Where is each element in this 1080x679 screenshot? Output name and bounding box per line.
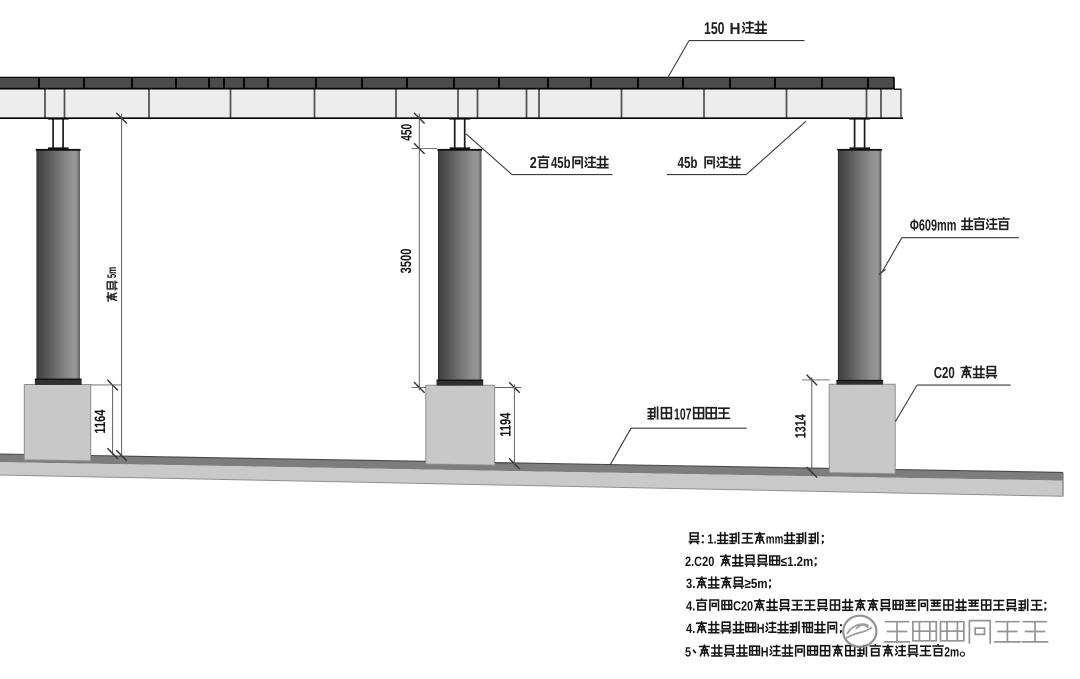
svg-text:3.: 3. <box>686 576 695 591</box>
svg-text:107: 107 <box>674 407 692 424</box>
svg-text:450: 450 <box>398 124 415 141</box>
svg-text:2.C20: 2.C20 <box>685 554 714 569</box>
svg-text:C20: C20 <box>733 599 753 614</box>
svg-text:45b: 45b <box>551 155 571 172</box>
svg-text:3500: 3500 <box>398 249 415 274</box>
svg-text:150: 150 <box>704 19 725 38</box>
svg-text:mm: mm <box>766 532 784 547</box>
svg-text:C20: C20 <box>934 365 955 382</box>
svg-text:Φ609mm: Φ609mm <box>910 218 957 235</box>
svg-text:H: H <box>757 621 765 636</box>
svg-text:2: 2 <box>530 155 537 172</box>
svg-text:5: 5 <box>685 644 691 659</box>
svg-text:4.: 4. <box>686 599 695 614</box>
svg-text:H: H <box>730 21 741 38</box>
svg-text:5m: 5m <box>105 267 119 279</box>
svg-text:2m: 2m <box>944 644 959 659</box>
svg-text:1194: 1194 <box>497 412 514 436</box>
svg-text:45b: 45b <box>678 155 698 172</box>
svg-text:H: H <box>761 644 769 659</box>
svg-text:1.: 1. <box>707 532 716 547</box>
svg-text:1164: 1164 <box>92 409 109 433</box>
svg-text:≥5m: ≥5m <box>745 576 768 591</box>
svg-text:4.: 4. <box>686 621 695 636</box>
svg-text:1314: 1314 <box>793 414 810 438</box>
svg-text:≤1.2m: ≤1.2m <box>781 554 813 569</box>
